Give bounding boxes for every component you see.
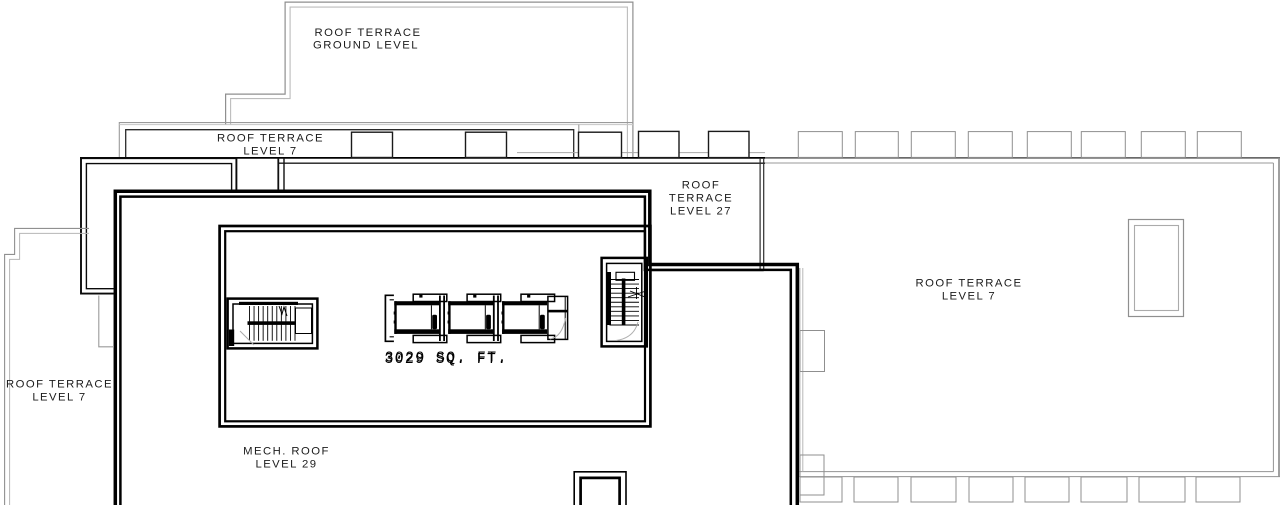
svg-text:TERRACE: TERRACE bbox=[669, 192, 733, 204]
svg-text:GROUND LEVEL: GROUND LEVEL bbox=[313, 40, 419, 52]
svg-text:ROOF TERRACE: ROOF TERRACE bbox=[315, 27, 422, 39]
svg-text:ROOF TERRACE: ROOF TERRACE bbox=[217, 132, 324, 144]
svg-text:ROOF TERRACE: ROOF TERRACE bbox=[916, 277, 1023, 289]
svg-text:ROOF: ROOF bbox=[682, 179, 720, 191]
svg-text:ROOF TERRACE: ROOF TERRACE bbox=[6, 378, 113, 390]
svg-text:LEVEL 27: LEVEL 27 bbox=[670, 205, 732, 217]
svg-text:LEVEL 7: LEVEL 7 bbox=[32, 391, 86, 403]
svg-text:LEVEL 7: LEVEL 7 bbox=[942, 290, 996, 302]
svg-text:MECH. ROOF: MECH. ROOF bbox=[243, 446, 330, 458]
svg-text:3029 SQ. FT.: 3029 SQ. FT. bbox=[385, 350, 508, 366]
svg-text:LEVEL 7: LEVEL 7 bbox=[243, 145, 297, 157]
svg-text:LEVEL 29: LEVEL 29 bbox=[255, 459, 317, 471]
